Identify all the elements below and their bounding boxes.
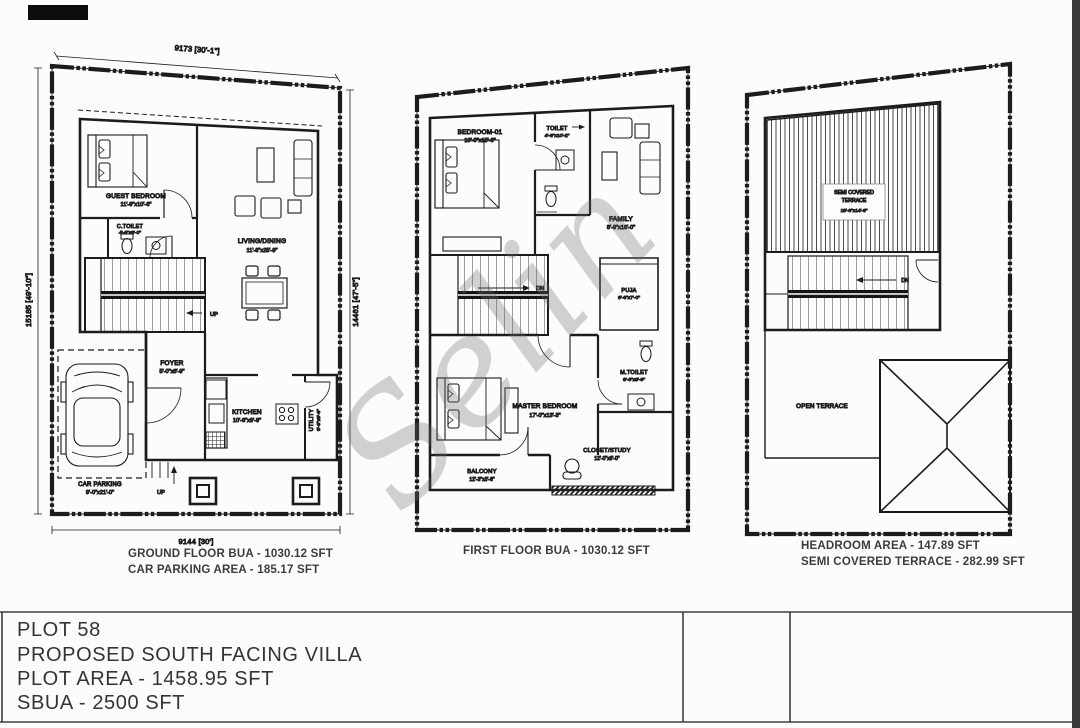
dim-right: 14461 [47'-5"] bbox=[351, 277, 360, 327]
roof bbox=[880, 360, 1010, 512]
car bbox=[61, 364, 133, 466]
scan-mark-top-left bbox=[28, 5, 88, 20]
title-plot-number: PLOT 58 bbox=[17, 619, 101, 642]
first-floor-caption: FIRST FLOOR BUA - 1030.12 SFT bbox=[463, 543, 650, 559]
room-label-c-toilet: C.TOILET bbox=[117, 224, 144, 230]
room-label-semi-covered-1: SEMI COVERED bbox=[834, 190, 874, 196]
master-bed bbox=[437, 378, 518, 440]
dn-label-terrace: DN bbox=[901, 278, 909, 284]
room-label-foyer: FOYER bbox=[160, 360, 183, 367]
terrace-staircase bbox=[765, 256, 938, 330]
room-size-toilet: 4'-6"x10'-2" bbox=[545, 133, 570, 139]
room-label-open-terrace: OPEN TERRACE bbox=[796, 403, 848, 410]
room-size-puja: 6'-6"x7'-0" bbox=[618, 295, 640, 301]
room-size-master-bedroom: 17'-0"x13'-3" bbox=[529, 413, 560, 419]
room-label-puja: PUJA bbox=[621, 288, 636, 294]
ground-floor-caption-line1: GROUND FLOOR BUA - 1030.12 SFT bbox=[128, 546, 333, 562]
bedroom01-bed bbox=[435, 140, 501, 251]
room-label-car-parking: CAR PARKING bbox=[78, 482, 122, 488]
ground-floor-caption: GROUND FLOOR BUA - 1030.12 SFT CAR PARKI… bbox=[128, 546, 333, 578]
room-size-bedroom01: 10'-0"x15'-6" bbox=[464, 138, 495, 144]
up-label-stair: UP bbox=[210, 312, 218, 318]
room-size-balcony: 12'-3"x3'-6" bbox=[469, 477, 494, 483]
study-chair bbox=[563, 459, 581, 479]
room-label-kitchen: KITCHEN bbox=[232, 409, 262, 416]
ctoilet-fixtures bbox=[121, 234, 166, 254]
title-proposal: PROPOSED SOUTH FACING VILLA bbox=[17, 644, 362, 667]
room-label-closet-study: CLOSET/STUDY bbox=[583, 448, 630, 454]
room-size-m-toilet: 6'-6"x8'-9" bbox=[623, 377, 645, 383]
family-furniture bbox=[602, 118, 660, 194]
up-label-entry: UP bbox=[157, 490, 165, 496]
open-terrace bbox=[765, 330, 880, 458]
ground-floor-caption-line2: CAR PARKING AREA - 185.17 SFT bbox=[128, 562, 333, 578]
room-label-family: FAMILY bbox=[609, 216, 633, 223]
porch-columns bbox=[190, 478, 319, 504]
room-size-guest-bedroom: 11'-9"x10'-6" bbox=[121, 202, 152, 208]
room-size-living-dining: 11'-6"x25'-9" bbox=[247, 248, 278, 254]
scan-edge-strip bbox=[1072, 0, 1080, 728]
room-label-m-toilet: M.TOILET bbox=[620, 370, 648, 376]
room-label-master-bedroom: MASTER BEDROOM bbox=[513, 403, 578, 410]
room-size-foyer: 5'-0"x8'-9" bbox=[159, 369, 184, 375]
ground-floor-plan: 9173 [30'-1"] 15185 [49'-10"] 14461 [47'… bbox=[24, 43, 360, 546]
room-label-utility: UTILITY bbox=[309, 409, 315, 432]
first-staircase bbox=[430, 255, 548, 335]
terrace-caption-line2: SEMI COVERED TERRACE - 282.99 SFT bbox=[801, 554, 1025, 570]
entry-steps bbox=[152, 462, 177, 484]
room-label-semi-covered-2: TERRACE bbox=[842, 198, 867, 204]
room-label-balcony: BALCONY bbox=[467, 469, 496, 475]
room-size-closet-study: 12'-0"x8'-0" bbox=[594, 456, 619, 462]
first-floor-plan: DN bbox=[417, 68, 688, 530]
guest-bed bbox=[88, 135, 147, 187]
room-size-c-toilet: 4'-6"x8'-0" bbox=[119, 230, 141, 236]
ground-staircase bbox=[85, 258, 205, 332]
dim-left: 15185 [49'-10"] bbox=[24, 273, 33, 327]
room-label-living-dining: LIVING/DINING bbox=[238, 238, 286, 245]
room-size-car-parking: 9'-0"x21'-0" bbox=[86, 490, 114, 496]
plan-drawing: 9173 [30'-1"] 15185 [49'-10"] 14461 [47'… bbox=[0, 0, 1080, 728]
room-size-family: 8'-9"x16'-0" bbox=[607, 225, 635, 231]
terrace-caption-line1: HEADROOM AREA - 147.89 SFT bbox=[801, 538, 1025, 554]
title-plot-area: PLOT AREA - 1458.95 SFT bbox=[17, 668, 274, 691]
terrace-plan: SEMI COVERED TERRACE 19'-6"x14'-6" DN OP… bbox=[747, 64, 1010, 534]
dim-bottom: 9144 [30'] bbox=[178, 537, 213, 546]
car-parking-area bbox=[58, 350, 146, 478]
toilet-fixtures bbox=[537, 150, 574, 212]
toilet-leader-arrow bbox=[579, 125, 585, 130]
room-size-utility: 3'-9"x9'-9" bbox=[316, 409, 322, 431]
living-furniture bbox=[235, 140, 312, 218]
dining-set bbox=[242, 266, 287, 320]
title-sbua: SBUA - 2500 SFT bbox=[17, 692, 185, 715]
room-size-semi-covered: 19'-6"x14'-6" bbox=[841, 208, 868, 214]
room-label-guest-bedroom: GUEST BEDROOM bbox=[106, 193, 166, 200]
first-floor-caption-line1: FIRST FLOOR BUA - 1030.12 SFT bbox=[463, 543, 650, 559]
setback-line bbox=[78, 110, 322, 126]
room-size-kitchen: 10'-6"x9'-9" bbox=[233, 418, 261, 424]
room-label-toilet: TOILET bbox=[547, 126, 568, 132]
dim-top: 9173 [30'-1"] bbox=[174, 43, 220, 55]
dn-label-first: DN bbox=[536, 286, 544, 292]
room-label-bedroom01: BEDROOM-01 bbox=[458, 129, 503, 136]
floor-plan-sheet: 9173 [30'-1"] 15185 [49'-10"] 14461 [47'… bbox=[0, 0, 1080, 728]
terrace-caption: HEADROOM AREA - 147.89 SFT SEMI COVERED … bbox=[801, 538, 1025, 570]
